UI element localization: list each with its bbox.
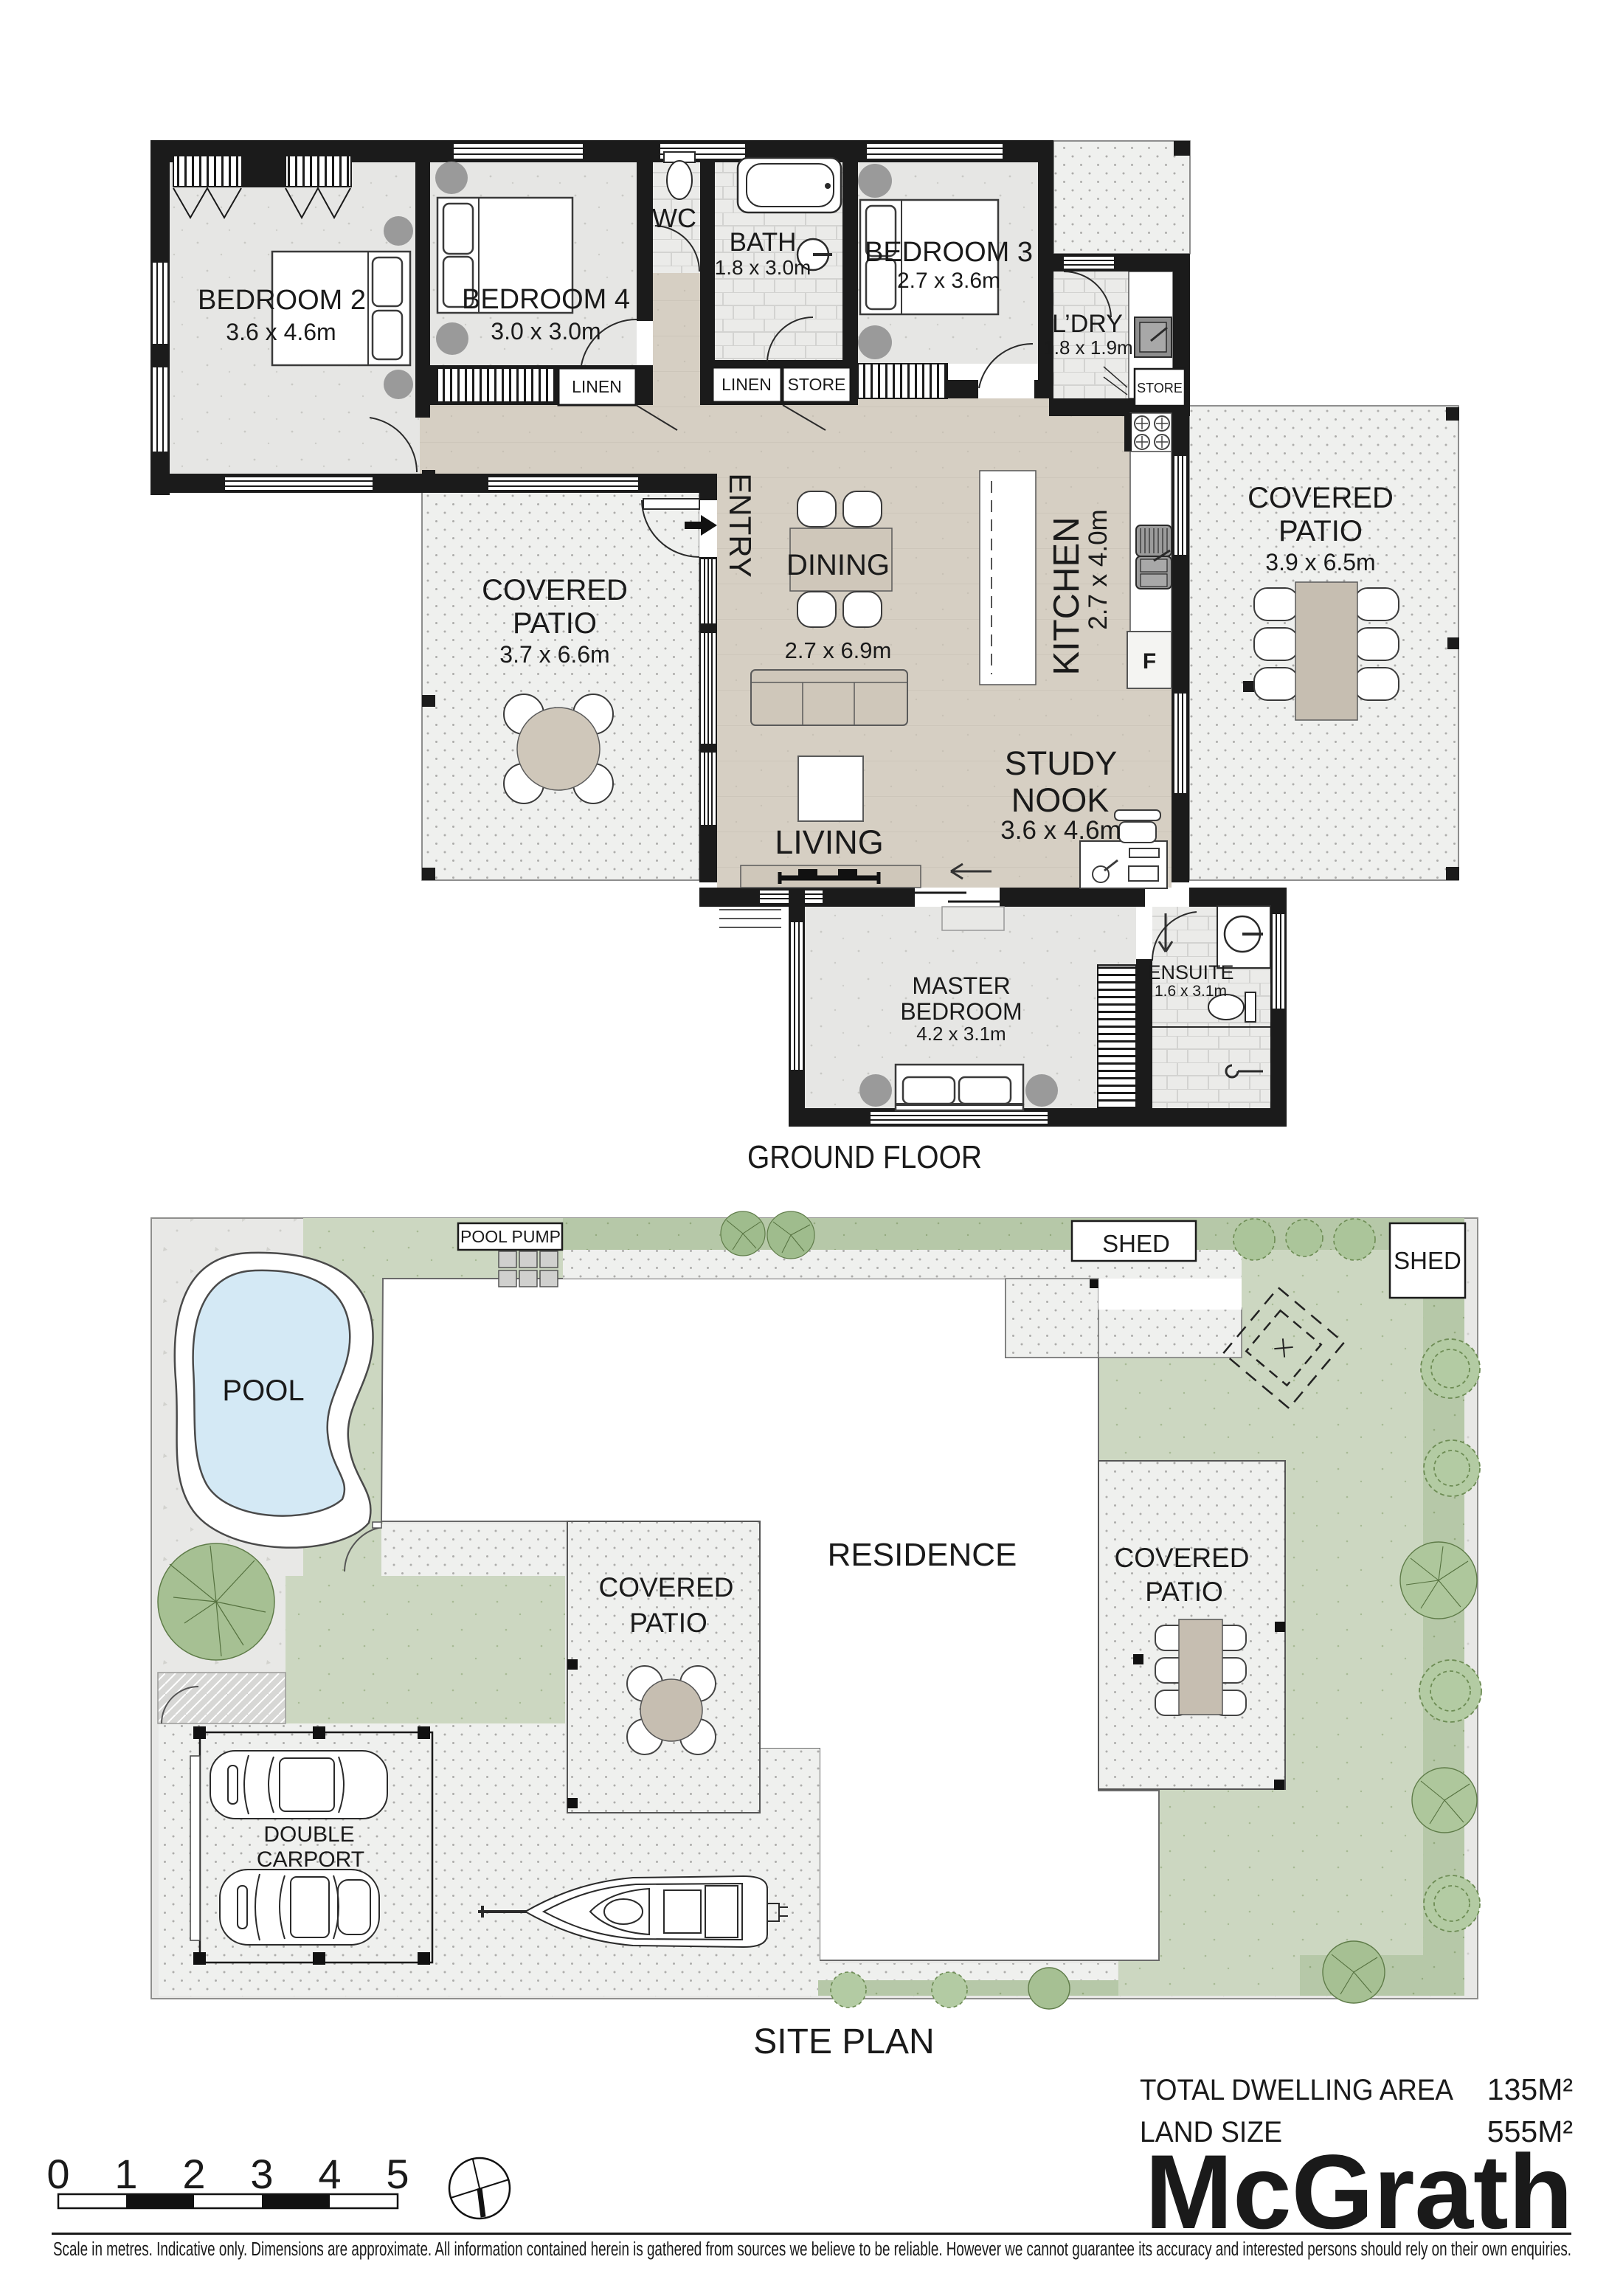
- svg-text:1.6 x 3.1m: 1.6 x 3.1m: [1155, 983, 1227, 1000]
- svg-text:GROUND FLOOR: GROUND FLOOR: [747, 1139, 982, 1175]
- svg-text:CARPORT: CARPORT: [257, 1847, 364, 1872]
- svg-text:COVERED: COVERED: [482, 574, 628, 606]
- svg-text:PATIO: PATIO: [1145, 1577, 1223, 1607]
- svg-text:TOTAL DWELLING AREA: TOTAL DWELLING AREA: [1140, 2074, 1453, 2106]
- svg-text:PATIO: PATIO: [1278, 515, 1363, 547]
- svg-text:BATH: BATH: [730, 228, 797, 257]
- svg-text:RESIDENCE: RESIDENCE: [828, 1537, 1017, 1573]
- svg-text:DOUBLE: DOUBLE: [263, 1822, 354, 1847]
- svg-text:2.7 x 6.9m: 2.7 x 6.9m: [785, 637, 892, 663]
- svg-text:1: 1: [114, 2151, 137, 2197]
- svg-text:2: 2: [182, 2151, 205, 2197]
- svg-text:3.6 x 4.6m: 3.6 x 4.6m: [226, 319, 336, 345]
- svg-text:3.7 x 6.6m: 3.7 x 6.6m: [499, 641, 609, 668]
- svg-text:POOL: POOL: [222, 1375, 304, 1407]
- svg-text:1.8 x 1.9m: 1.8 x 1.9m: [1043, 336, 1132, 359]
- svg-text:3.0 x 3.0m: 3.0 x 3.0m: [491, 318, 601, 345]
- svg-text:MASTER: MASTER: [912, 972, 1010, 999]
- svg-text:LINEN: LINEN: [572, 377, 622, 396]
- svg-text:2.7 x 3.6m: 2.7 x 3.6m: [897, 269, 1000, 293]
- svg-text:LIVING: LIVING: [775, 823, 884, 861]
- svg-text:NOOK: NOOK: [1011, 781, 1110, 819]
- svg-text:WC: WC: [652, 203, 696, 233]
- svg-text:PATIO: PATIO: [513, 607, 597, 640]
- svg-text:KITCHEN: KITCHEN: [1047, 516, 1087, 675]
- svg-text:5: 5: [386, 2151, 409, 2197]
- svg-text:3.9 x 6.5m: 3.9 x 6.5m: [1265, 549, 1375, 575]
- svg-text:STORE: STORE: [1137, 381, 1183, 395]
- svg-text:LINEN: LINEN: [721, 375, 772, 394]
- svg-text:1.8 x 3.0m: 1.8 x 3.0m: [715, 256, 811, 279]
- svg-text:BEDROOM: BEDROOM: [900, 998, 1022, 1025]
- svg-text:SITE PLAN: SITE PLAN: [753, 2022, 934, 2061]
- svg-text:L’DRY: L’DRY: [1052, 310, 1123, 338]
- svg-text:4: 4: [318, 2151, 341, 2197]
- svg-text:Scale in metres. Indicative on: Scale in metres. Indicative only. Dimens…: [53, 2239, 1571, 2260]
- svg-text:COVERED: COVERED: [599, 1572, 734, 1602]
- svg-text:COVERED: COVERED: [1247, 482, 1394, 514]
- svg-text:135M²: 135M²: [1487, 2072, 1573, 2106]
- svg-text:BEDROOM 3: BEDROOM 3: [865, 237, 1033, 268]
- svg-text:DINING: DINING: [786, 549, 890, 581]
- svg-text:ENSUITE: ENSUITE: [1147, 961, 1233, 983]
- svg-text:STORE: STORE: [788, 375, 846, 394]
- svg-text:SHED: SHED: [1394, 1247, 1461, 1274]
- svg-text:2.7 x 4.0m: 2.7 x 4.0m: [1084, 509, 1112, 629]
- svg-text:BEDROOM 2: BEDROOM 2: [198, 285, 366, 316]
- svg-text:3.6 x 4.6m: 3.6 x 4.6m: [1000, 816, 1121, 845]
- svg-text:F: F: [1143, 649, 1156, 674]
- svg-text:ENTRY: ENTRY: [723, 473, 758, 578]
- svg-text:POOL PUMP: POOL PUMP: [460, 1227, 561, 1246]
- svg-text:COVERED: COVERED: [1115, 1543, 1250, 1573]
- svg-text:0: 0: [46, 2151, 69, 2197]
- svg-text:4.2 x 3.1m: 4.2 x 3.1m: [916, 1023, 1006, 1045]
- svg-text:SHED: SHED: [1102, 1230, 1170, 1257]
- svg-text:PATIO: PATIO: [629, 1608, 707, 1638]
- svg-text:STUDY: STUDY: [1005, 744, 1118, 782]
- svg-text:3: 3: [250, 2151, 273, 2197]
- svg-text:BEDROOM 4: BEDROOM 4: [462, 284, 630, 315]
